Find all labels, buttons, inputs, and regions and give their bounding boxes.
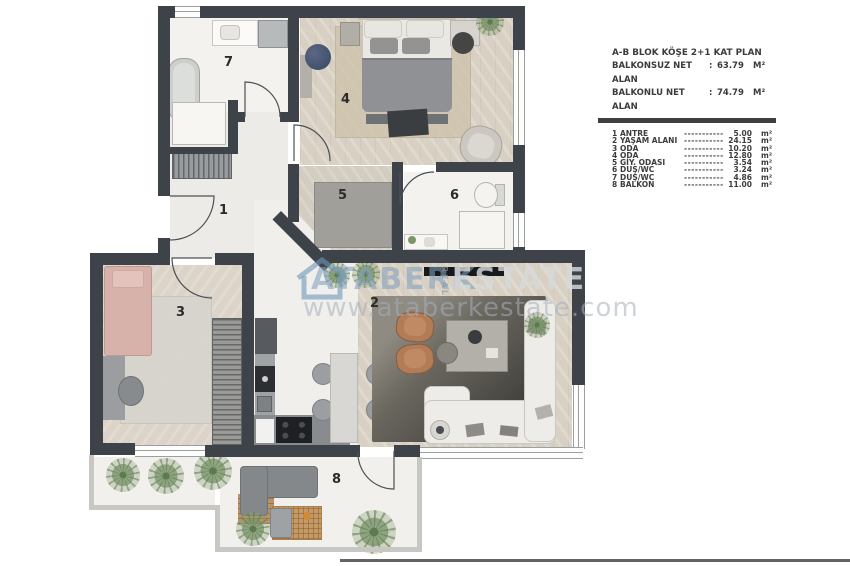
door-arc-room7 — [245, 82, 280, 117]
room-label-5: 5 — [338, 188, 347, 203]
legend-subtitle-1-colon: : — [709, 60, 717, 74]
door-arc-balcony — [358, 451, 394, 489]
door-arc-room3 — [172, 258, 212, 298]
legend-subtitle-1-value: 63.79 — [717, 60, 743, 74]
room-label-8: 8 — [332, 472, 341, 487]
legend-subtitle-2-colon: : — [709, 87, 717, 101]
room-label-4: 4 — [341, 92, 350, 107]
legend-subtitle-2-value: 74.79 — [717, 87, 743, 101]
watermark-website: www.ataberkestate.com — [303, 293, 639, 323]
room-label-3: 3 — [176, 305, 185, 320]
legend-divider-bar — [598, 118, 776, 123]
legend-subtitle-1-unit: M² — [753, 60, 765, 74]
room-label-1: 1 — [219, 203, 228, 218]
watermark-brand-last: ESTATE — [452, 262, 586, 297]
room-label-6: 6 — [450, 188, 459, 203]
legend-subtitle-2-unit: M² — [753, 87, 765, 101]
legend-row: 8BALKON-----------11.00m² — [612, 181, 848, 188]
legend-subtitle-2: BALKONLU NET ALAN : 74.79 M² — [598, 87, 848, 114]
legend-panel: A-B BLOK KÖŞE 2+1 KAT PLAN BALKONSUZ NET… — [598, 46, 848, 188]
door-arc-room6 — [400, 172, 434, 206]
room-label-7: 7 — [224, 55, 233, 70]
legend-title: A-B BLOK KÖŞE 2+1 KAT PLAN — [598, 46, 848, 60]
legend-subtitle-1: BALKONSUZ NET ALAN : 63.79 M² — [598, 60, 848, 87]
bottom-rule-line — [340, 559, 850, 562]
legend-subtitle-1-label: BALKONSUZ NET ALAN — [612, 60, 709, 87]
door-arc-room4 — [294, 125, 330, 161]
floor-plan-page: 1 2 3 4 5 6 7 8 ATABERK REAL ESTATE www.… — [0, 0, 850, 566]
legend-subtitle-2-label: BALKONLU NET ALAN — [612, 87, 709, 114]
door-arc-entrance — [170, 196, 214, 240]
legend-room-list: 1ANTRE-----------5.00m² 2YAŞAM ALANI----… — [598, 130, 848, 188]
